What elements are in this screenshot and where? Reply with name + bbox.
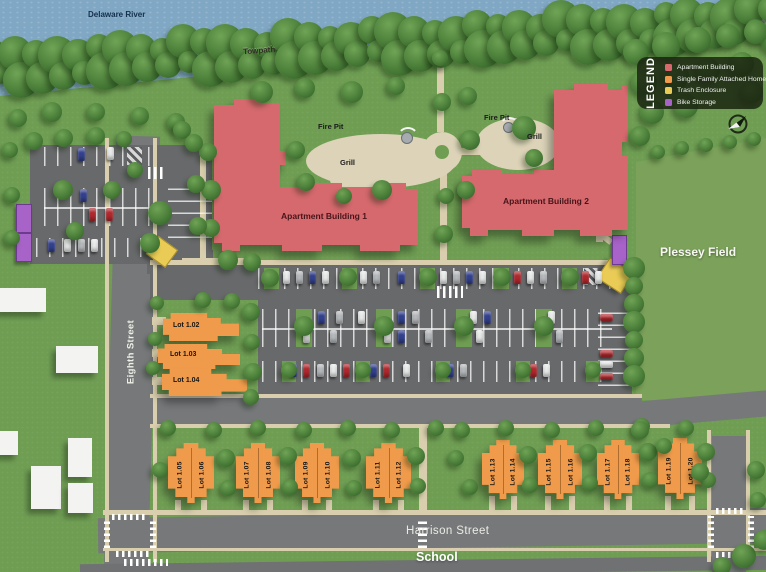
lot-label: Lot 1.13 xyxy=(489,458,496,485)
tree xyxy=(244,334,260,350)
parked-car xyxy=(360,271,367,284)
tree xyxy=(287,141,305,159)
tree xyxy=(116,131,132,147)
tree xyxy=(428,420,444,436)
lot-label: Lot 1.02 xyxy=(173,322,199,329)
tree xyxy=(160,420,176,436)
tree xyxy=(25,132,43,150)
tree xyxy=(103,181,121,199)
legend-swatch xyxy=(665,64,672,71)
tree xyxy=(750,492,766,508)
tree xyxy=(4,187,20,203)
lot-label: Lot 1.18 xyxy=(625,458,632,485)
tree xyxy=(87,127,105,145)
road-internal-loop xyxy=(148,398,642,424)
parked-car xyxy=(78,239,85,252)
tree xyxy=(462,479,478,495)
tree xyxy=(279,447,297,465)
parked-car xyxy=(107,147,114,160)
tree xyxy=(585,362,601,378)
parked-car xyxy=(595,271,602,284)
legend-item: Apartment Building xyxy=(665,63,734,72)
tree xyxy=(432,50,448,66)
crosswalk xyxy=(148,167,164,179)
tree xyxy=(344,41,370,67)
tree xyxy=(343,449,361,467)
walkway xyxy=(440,172,447,264)
tree xyxy=(419,268,437,286)
tree xyxy=(697,443,715,461)
parked-car xyxy=(582,271,589,284)
parking-stalls xyxy=(44,207,154,209)
parked-car xyxy=(476,330,483,343)
tree xyxy=(217,449,235,467)
parked-car xyxy=(527,271,534,284)
parked-car xyxy=(370,364,377,377)
parked-car xyxy=(403,364,410,377)
tree xyxy=(244,363,262,381)
legend-swatch xyxy=(665,87,672,94)
north-arrow-icon xyxy=(724,112,752,141)
parked-car xyxy=(358,311,365,324)
walkway xyxy=(419,426,427,512)
fire-pit-label-2: Fire Pit xyxy=(484,113,509,122)
legend-item-label: Apartment Building xyxy=(677,64,734,71)
parked-car xyxy=(484,311,491,324)
tree xyxy=(433,93,451,111)
tree xyxy=(519,446,537,464)
tree xyxy=(243,389,259,405)
legend-swatch xyxy=(665,99,672,106)
crosswalk xyxy=(150,518,156,548)
tree xyxy=(146,361,160,375)
parked-car xyxy=(530,364,537,377)
tree xyxy=(435,362,451,378)
site-plan-map: Lot 1.02 Lot 1.03 Lot 1.04 Delaware Rive… xyxy=(0,0,766,572)
tree xyxy=(713,557,731,572)
school-label: School xyxy=(416,550,458,564)
lot-home-building xyxy=(597,440,639,499)
legend-item-label: Bike Storage xyxy=(677,99,716,106)
tree xyxy=(522,477,538,493)
tree xyxy=(493,268,511,286)
parked-car xyxy=(466,271,473,284)
lot-label: Lot 1.10 xyxy=(324,462,331,489)
lot-label: Lot 1.16 xyxy=(567,458,574,485)
lot-label: Lot 1.07 xyxy=(244,462,251,489)
tree xyxy=(642,472,658,488)
tree xyxy=(206,422,222,438)
tree xyxy=(4,230,20,246)
parked-car xyxy=(330,364,337,377)
apartment-building-1 xyxy=(210,95,420,255)
tree xyxy=(534,316,554,336)
tree xyxy=(582,475,598,491)
parked-car xyxy=(425,330,432,343)
tree xyxy=(242,303,260,321)
tree xyxy=(623,257,645,279)
tree xyxy=(261,269,279,287)
parked-car xyxy=(383,364,390,377)
tree xyxy=(341,81,363,103)
parked-car xyxy=(80,189,87,202)
tree xyxy=(435,225,453,243)
tree xyxy=(685,27,711,53)
tree xyxy=(747,461,765,479)
parked-car xyxy=(106,208,113,221)
tree xyxy=(691,463,709,481)
legend-item: Bike Storage xyxy=(665,98,716,107)
tree xyxy=(336,188,352,204)
legend-title: LEGEND xyxy=(645,57,657,109)
parked-car xyxy=(600,373,613,380)
crosswalk xyxy=(437,286,463,298)
tree xyxy=(355,362,371,378)
tree xyxy=(625,277,643,295)
tree xyxy=(131,107,149,125)
tree xyxy=(656,438,672,454)
tree xyxy=(42,102,62,122)
parked-car xyxy=(309,271,316,284)
tree xyxy=(294,316,314,336)
lot-label: Lot 1.14 xyxy=(510,458,517,485)
tree xyxy=(675,141,689,155)
tree xyxy=(699,138,713,152)
plessey-field-area xyxy=(636,138,766,400)
tree xyxy=(525,149,543,167)
parked-car xyxy=(600,361,613,368)
lot-label: Lot 1.08 xyxy=(265,462,272,489)
tree xyxy=(340,420,356,436)
parked-car xyxy=(440,271,447,284)
parked-car xyxy=(600,350,613,357)
tree xyxy=(374,316,394,336)
tree xyxy=(454,422,470,438)
tree xyxy=(297,173,315,191)
parked-car xyxy=(296,271,303,284)
parked-car xyxy=(336,311,343,324)
lot-label: Lot 1.03 xyxy=(170,351,196,358)
tree xyxy=(384,422,400,438)
parked-car xyxy=(343,364,350,377)
tree xyxy=(744,20,766,44)
lot-label: Lot 1.12 xyxy=(396,462,403,489)
parked-car xyxy=(78,148,85,161)
lot-label: Lot 1.06 xyxy=(199,462,206,489)
parked-car xyxy=(322,271,329,284)
legend-item: Single Family Attached Homes xyxy=(665,75,766,84)
tree xyxy=(296,422,312,438)
crosswalk xyxy=(116,551,152,557)
tree xyxy=(251,81,273,103)
parked-car xyxy=(556,330,563,343)
tree xyxy=(53,180,73,200)
parked-car xyxy=(64,239,71,252)
grill-label-1: Grill xyxy=(340,158,355,167)
crosswalk xyxy=(708,516,714,548)
tree xyxy=(148,201,172,225)
lot-label: Lot 1.17 xyxy=(604,458,611,485)
tree xyxy=(459,87,477,105)
tree xyxy=(454,316,474,336)
tree xyxy=(224,293,240,309)
legend-item-label: Trash Enclosure xyxy=(677,87,726,94)
tree xyxy=(9,109,27,127)
parked-car xyxy=(373,271,380,284)
parked-car xyxy=(479,271,486,284)
tree xyxy=(150,296,164,310)
parked-car xyxy=(303,364,310,377)
tree xyxy=(243,253,261,271)
tree xyxy=(625,331,643,349)
apartment-building-2-label: Apartment Building 2 xyxy=(466,196,626,206)
legend-item: Trash Enclosure xyxy=(665,86,726,95)
parked-car xyxy=(460,364,467,377)
parked-car xyxy=(453,271,460,284)
parked-car xyxy=(330,330,337,343)
existing-house xyxy=(0,431,18,455)
legend-swatch xyxy=(665,76,672,83)
tree xyxy=(630,126,650,146)
tree xyxy=(2,142,18,158)
parked-car xyxy=(283,271,290,284)
delaware-river-label: Delaware River xyxy=(88,10,145,19)
tree xyxy=(189,217,207,235)
tree xyxy=(448,450,464,466)
path-circle-center xyxy=(435,145,449,159)
tree xyxy=(588,420,604,436)
tree xyxy=(346,480,362,496)
lot-home-building xyxy=(482,440,524,499)
crosswalk xyxy=(748,516,754,548)
tree xyxy=(639,443,657,461)
harrison-street-label: Harrison Street xyxy=(406,525,489,537)
tree xyxy=(652,32,680,60)
existing-house xyxy=(0,288,46,312)
tree xyxy=(579,444,597,462)
eighth-street-label: Eighth Street xyxy=(126,320,137,384)
parked-car xyxy=(89,208,96,221)
tree xyxy=(372,180,392,200)
parked-car xyxy=(91,239,98,252)
parked-car xyxy=(48,239,55,252)
tree xyxy=(185,134,203,152)
tree xyxy=(220,480,236,496)
parked-car xyxy=(540,271,547,284)
plessey-field-label: Plessey Field xyxy=(660,245,736,259)
parked-car xyxy=(412,311,419,324)
lot-label: Lot 1.05 xyxy=(176,462,183,489)
lot-home-building xyxy=(168,443,214,503)
tree xyxy=(407,447,425,465)
tree xyxy=(387,77,405,95)
parked-car xyxy=(318,311,325,324)
tree xyxy=(631,421,649,439)
tree xyxy=(281,362,297,378)
tree xyxy=(623,311,645,333)
parked-car xyxy=(600,314,613,321)
existing-house xyxy=(56,346,98,373)
bike-storage-west-1 xyxy=(16,204,32,233)
tree xyxy=(152,462,168,478)
lot-label: Lot 1.15 xyxy=(546,458,553,485)
tree xyxy=(250,420,266,436)
tree xyxy=(460,130,480,150)
parked-car xyxy=(398,271,405,284)
tree xyxy=(295,78,315,98)
lot-home-building xyxy=(366,443,411,503)
tree xyxy=(55,129,73,147)
tree xyxy=(282,479,298,495)
parking-stalls xyxy=(44,207,154,226)
tree xyxy=(66,222,84,240)
tree xyxy=(339,268,357,286)
tree xyxy=(515,362,531,378)
lot-label: Lot 1.09 xyxy=(303,462,310,489)
tree xyxy=(498,420,514,436)
fire-pit-label-1: Fire Pit xyxy=(318,122,343,131)
parking-stalls xyxy=(262,309,612,328)
tree xyxy=(127,162,143,178)
tree xyxy=(195,292,211,308)
tree xyxy=(148,332,162,346)
existing-house xyxy=(31,466,61,509)
tree xyxy=(678,420,694,436)
tree xyxy=(544,422,560,438)
lot-label: Lot 1.19 xyxy=(666,457,673,484)
tree xyxy=(140,233,160,253)
tree xyxy=(623,365,645,387)
parked-car xyxy=(398,311,405,324)
legend-panel: LEGEND Apartment BuildingSingle Family A… xyxy=(637,57,763,109)
legend-item-label: Single Family Attached Homes xyxy=(677,76,766,83)
tree xyxy=(87,103,105,121)
tree xyxy=(561,268,579,286)
lot-label: Lot 1.11 xyxy=(374,462,381,489)
tree xyxy=(187,175,205,193)
parked-car xyxy=(317,364,324,377)
tree xyxy=(410,478,426,494)
crosswalk xyxy=(124,559,168,566)
grill-label-2: Grill xyxy=(527,132,542,141)
crosswalk xyxy=(112,514,148,520)
apartment-building-1-label: Apartment Building 1 xyxy=(244,211,404,221)
tree xyxy=(754,530,766,550)
parked-car xyxy=(514,271,521,284)
existing-house xyxy=(68,483,93,513)
tree xyxy=(218,250,238,270)
tree xyxy=(651,145,665,159)
parked-car xyxy=(398,330,405,343)
tree xyxy=(438,188,454,204)
tree xyxy=(716,24,740,48)
lot-label: Lot 1.04 xyxy=(173,377,199,384)
existing-house xyxy=(68,438,92,477)
crosswalk xyxy=(104,518,110,548)
tree xyxy=(732,544,756,568)
parked-car xyxy=(543,364,550,377)
apartment-building-2 xyxy=(462,82,628,240)
crosswalk xyxy=(716,508,744,514)
